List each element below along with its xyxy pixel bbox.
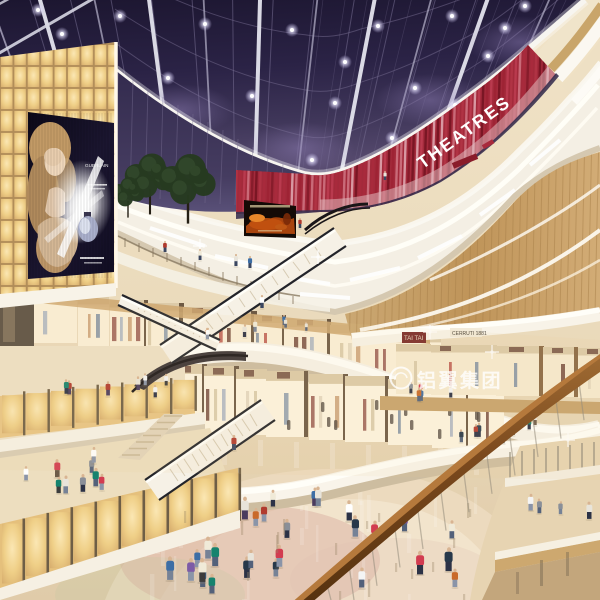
svg-text:铝翼集团: 铝翼集团 (417, 369, 503, 392)
